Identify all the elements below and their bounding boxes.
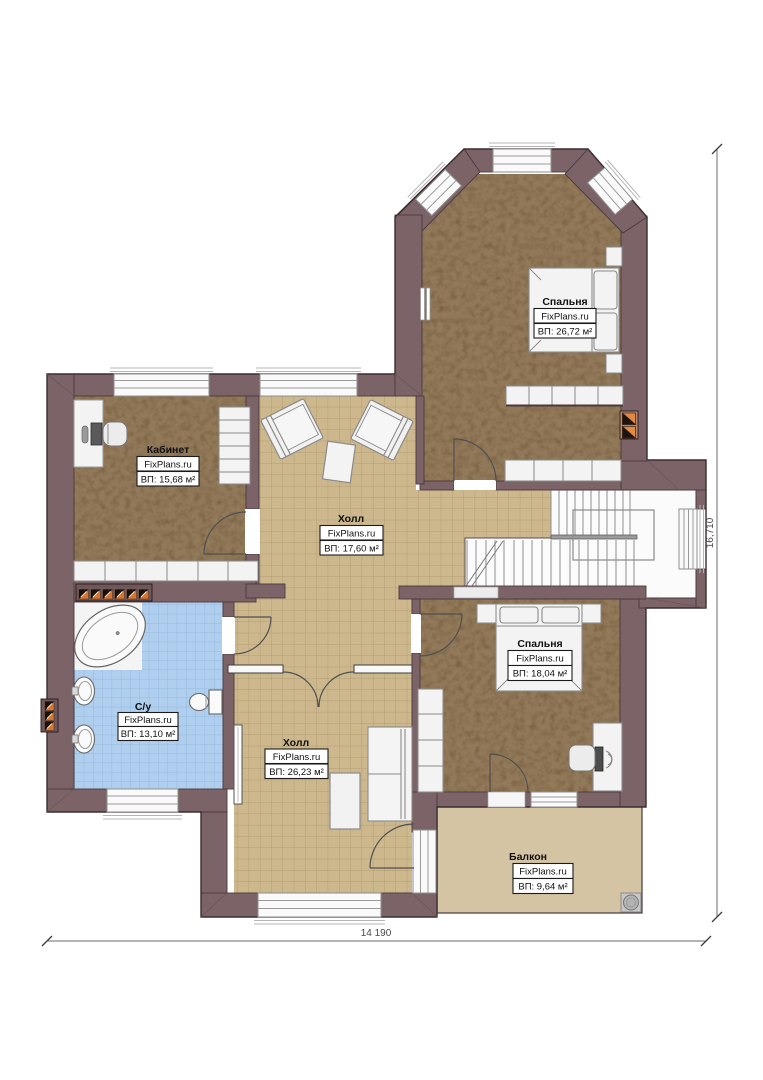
svg-text:16,710: 16,710 [705,517,716,548]
svg-text:FixPlans.ru: FixPlans.ru [273,752,321,763]
svg-text:FixPlans.ru: FixPlans.ru [144,460,192,471]
svg-text:ВП: 13,10 м²: ВП: 13,10 м² [121,729,176,740]
svg-text:Спальня: Спальня [542,296,587,308]
svg-text:ВП: 18,04 м²: ВП: 18,04 м² [513,669,568,680]
svg-text:FixPlans.ru: FixPlans.ru [541,312,589,323]
svg-text:FixPlans.ru: FixPlans.ru [124,715,172,726]
svg-text:FixPlans.ru: FixPlans.ru [516,654,564,665]
svg-text:ВП: 26,72 м²: ВП: 26,72 м² [538,327,593,338]
svg-text:С/у: С/у [135,701,152,713]
svg-text:ВП: 26,23 м²: ВП: 26,23 м² [269,767,324,778]
svg-text:Кабинет: Кабинет [147,444,190,456]
svg-text:ВП: 17,60 м²: ВП: 17,60 м² [324,544,379,555]
svg-text:FixPlans.ru: FixPlans.ru [328,529,376,540]
svg-text:Холл: Холл [283,737,309,749]
svg-text:14 190: 14 190 [361,928,392,939]
svg-text:ВП: 9,64 м²: ВП: 9,64 м² [518,882,567,893]
svg-text:ВП: 15,68 м²: ВП: 15,68 м² [141,475,196,486]
svg-text:Балкон: Балкон [509,851,547,863]
svg-text:FixPlans.ru: FixPlans.ru [519,867,567,878]
svg-text:Холл: Холл [338,513,364,525]
svg-text:Спальня: Спальня [517,638,562,650]
